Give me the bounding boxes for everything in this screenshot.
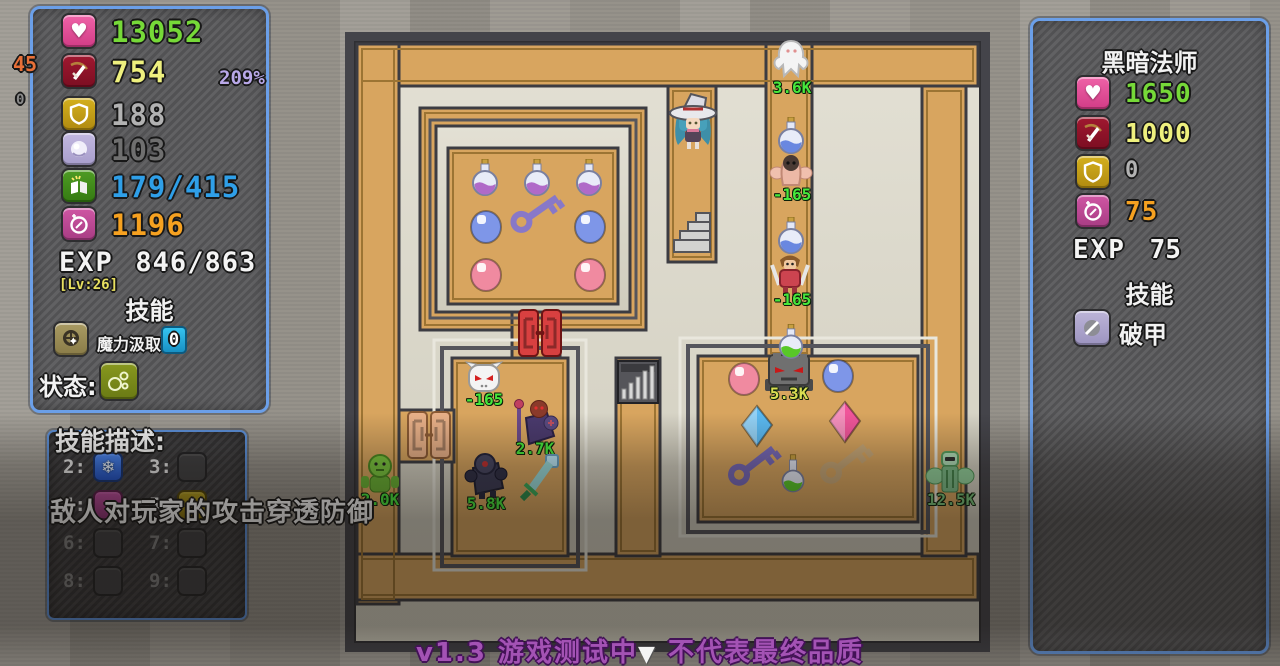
enemy-exp-label: EXP bbox=[1073, 235, 1126, 265]
enemy-name: 黑暗法师 bbox=[1033, 43, 1266, 78]
skill-description-text: 敌人对玩家的攻击穿透防御 bbox=[50, 492, 374, 529]
purple-potion[interactable] bbox=[469, 159, 501, 197]
heart-icon bbox=[1075, 75, 1111, 111]
shield-icon bbox=[1075, 154, 1111, 190]
enemy-defense-value: 0 bbox=[1125, 158, 1139, 183]
blue-potion[interactable] bbox=[775, 117, 807, 155]
mana-drain-label: 魔力汲取 bbox=[97, 331, 161, 355]
exp-value: 846/863 bbox=[135, 247, 256, 278]
fleshy-damage-label: -165 bbox=[773, 185, 812, 204]
blue-orb[interactable] bbox=[820, 355, 856, 395]
slot-7-label: 7: bbox=[149, 532, 172, 554]
exp-row: EXP 846/863 bbox=[59, 247, 256, 278]
sword-item[interactable] bbox=[516, 453, 562, 501]
enemy-attack-value: 1000 bbox=[1125, 119, 1192, 149]
ghost-hp-label: 3.6K bbox=[773, 78, 812, 97]
pink-orb[interactable] bbox=[468, 254, 504, 294]
blue-orb[interactable] bbox=[572, 206, 608, 246]
slot-2-label: 2: bbox=[63, 456, 86, 478]
armor-break-icon[interactable] bbox=[1073, 309, 1111, 347]
maze-area: 3.6K -165 -165 bbox=[345, 32, 990, 652]
attack-icon bbox=[1075, 115, 1111, 151]
version-text-right: 不代表最终品质 bbox=[668, 638, 864, 666]
bubbles-status-icon[interactable] bbox=[99, 361, 139, 401]
enemy-exp-value: 75 bbox=[1150, 235, 1181, 265]
attack-multiplier: 209% bbox=[219, 67, 265, 89]
player-witch bbox=[667, 90, 719, 152]
coin-icon bbox=[1075, 193, 1111, 229]
empty-skill-slot[interactable] bbox=[177, 528, 207, 558]
knight-hp-label: 5.8K bbox=[467, 494, 506, 513]
shield-icon bbox=[61, 96, 97, 132]
empty-skill-slot[interactable] bbox=[93, 528, 123, 558]
green-potion[interactable] bbox=[779, 451, 807, 497]
empty-skill-slot[interactable] bbox=[177, 566, 207, 596]
defense-value: 188 bbox=[111, 98, 166, 132]
pink-orb[interactable] bbox=[726, 358, 762, 398]
version-banner: v1.3 游戏测试中▼ 不代表最终品质 bbox=[0, 632, 1280, 666]
mana-drain-count-badge: 0 bbox=[161, 326, 187, 354]
red-gate[interactable] bbox=[517, 307, 563, 359]
attack-icon bbox=[61, 53, 97, 89]
orb-icon bbox=[61, 131, 97, 167]
exp-label: EXP bbox=[59, 247, 114, 278]
enemy-hp-value: 1650 bbox=[1125, 79, 1192, 109]
enemy-exp-row: EXP 75 bbox=[1073, 235, 1181, 265]
mana-drain-icon[interactable] bbox=[53, 321, 89, 357]
blue-potion[interactable] bbox=[775, 217, 807, 255]
attack-value: 754 bbox=[111, 55, 166, 89]
enemy-info-panel: 黑暗法师 1650 1000 0 75 EXP 75 技能 破甲 bbox=[1030, 18, 1269, 654]
empty-skill-slot[interactable] bbox=[93, 566, 123, 596]
coin-icon bbox=[61, 206, 97, 242]
enemy-ghost[interactable] bbox=[770, 38, 812, 80]
pink-orb[interactable] bbox=[572, 254, 608, 294]
slot-8-label: 8: bbox=[63, 570, 86, 592]
status-label: 状态: bbox=[39, 367, 97, 402]
green-armor-hp-label: 12.5K bbox=[927, 490, 975, 509]
defense-bonus-note: 0 bbox=[16, 92, 24, 108]
green-potion[interactable] bbox=[776, 324, 806, 360]
down-arrow-icon: ▼ bbox=[638, 642, 657, 666]
purple-potion[interactable] bbox=[573, 159, 605, 197]
stairs[interactable] bbox=[670, 210, 712, 256]
heart-icon bbox=[61, 13, 97, 49]
version-text-left: v1.3 游戏测试中 bbox=[416, 638, 638, 666]
blue-orb[interactable] bbox=[468, 206, 504, 246]
mana-value: 103 bbox=[111, 133, 166, 167]
player-stats-panel: 13052 754 209% 188 103 179/415 1196 EXP … bbox=[30, 6, 269, 413]
skill-description-title: 技能描述: bbox=[55, 422, 165, 458]
hp-value: 13052 bbox=[111, 15, 203, 49]
game-screen: 3.6K -165 -165 bbox=[0, 0, 1280, 666]
orange-gate[interactable] bbox=[406, 409, 452, 461]
enemy-dark-knight[interactable] bbox=[461, 450, 511, 500]
slot-6-label: 6: bbox=[63, 532, 86, 554]
enemy-gold-value: 75 bbox=[1125, 197, 1158, 227]
empty-skill-slot[interactable] bbox=[177, 452, 207, 482]
skull-damage-label: -165 bbox=[465, 390, 504, 409]
slot-3-label: 3: bbox=[149, 456, 172, 478]
golem-hp-label: 5.3K bbox=[770, 384, 809, 403]
book-value: 179/415 bbox=[111, 170, 240, 204]
attack-bonus-note: 45 bbox=[13, 52, 37, 76]
portcullis-gate[interactable] bbox=[617, 360, 659, 404]
warrior-damage-label: -165 bbox=[773, 290, 812, 309]
enemy-skills-title: 技能 bbox=[1033, 275, 1266, 310]
armor-break-label: 破甲 bbox=[1119, 315, 1167, 350]
gold-value: 1196 bbox=[111, 208, 185, 242]
slot-9-label: 9: bbox=[149, 570, 172, 592]
book-icon bbox=[61, 168, 97, 204]
